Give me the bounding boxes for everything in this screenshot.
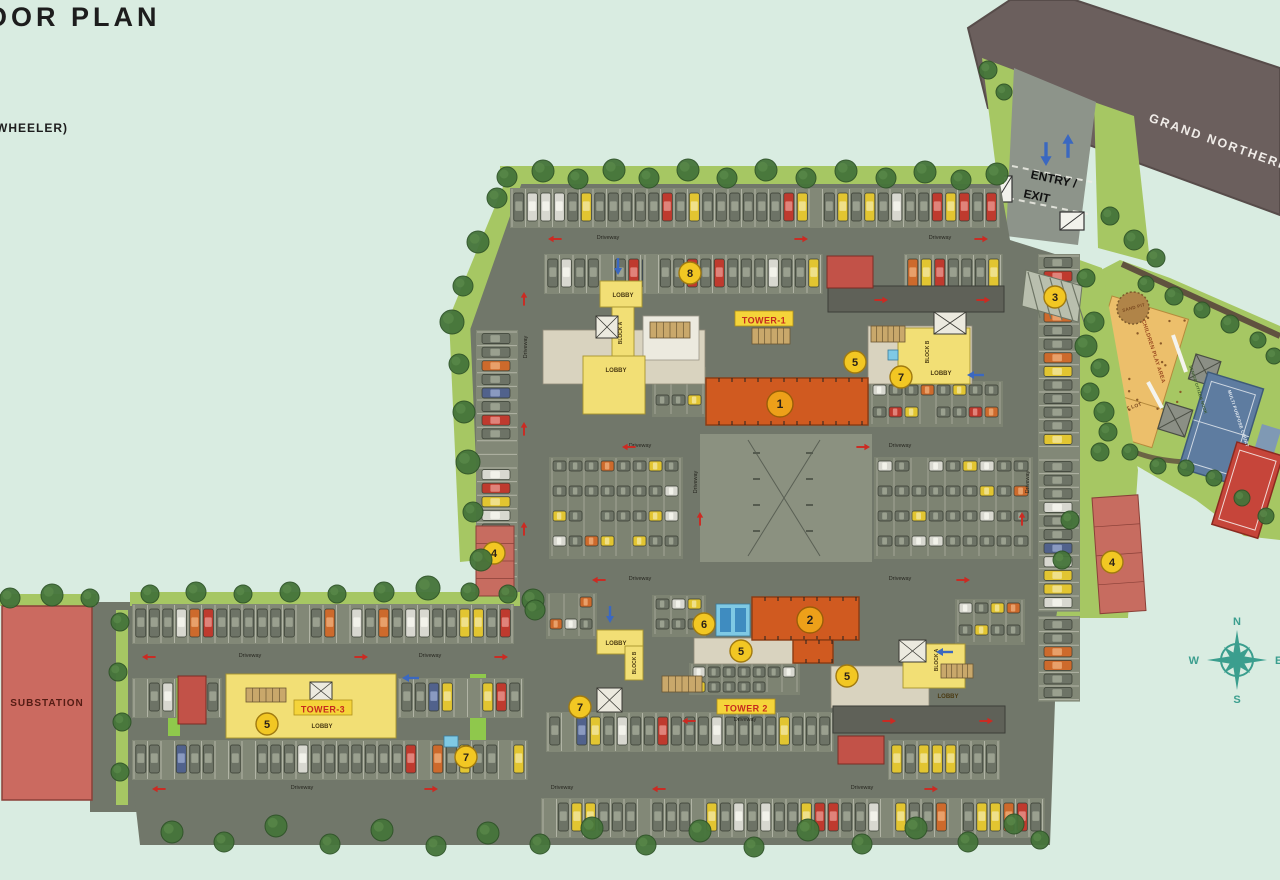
svg-text:LOBBY: LOBBY	[938, 694, 959, 700]
svg-text:5: 5	[844, 671, 850, 683]
svg-text:LOBBY: LOBBY	[931, 371, 952, 377]
svg-text:Driveway: Driveway	[629, 443, 652, 449]
svg-text:Driveway: Driveway	[929, 235, 952, 241]
svg-text:2: 2	[807, 613, 814, 627]
tower-footprint	[793, 640, 833, 663]
tower-label: TOWER-1	[742, 316, 786, 326]
svg-text:Driveway: Driveway	[523, 335, 529, 358]
legend-two-wheeler-label: WHEELER)	[0, 121, 68, 135]
svg-text:Driveway: Driveway	[851, 785, 874, 791]
svg-text:Driveway: Driveway	[629, 576, 652, 582]
svg-text:Driveway: Driveway	[889, 443, 912, 449]
svg-text:6: 6	[701, 619, 707, 631]
svg-text:BLOCK A: BLOCK A	[618, 321, 624, 344]
svg-text:Driveway: Driveway	[889, 576, 912, 582]
tower-label: TOWER-3	[301, 705, 345, 715]
svg-text:N: N	[1233, 616, 1241, 628]
floor-plan-canvas: GRAND NORTHERNENTRY /EXITSAND PITCHILDRE…	[0, 0, 1280, 880]
svg-text:3: 3	[1052, 292, 1058, 304]
svg-text:Driveway: Driveway	[1025, 470, 1031, 493]
svg-text:7: 7	[577, 702, 583, 714]
svg-text:Driveway: Driveway	[419, 653, 442, 659]
svg-text:Driveway: Driveway	[693, 470, 699, 493]
svg-text:7: 7	[898, 372, 904, 384]
svg-text:LOBBY: LOBBY	[312, 724, 333, 730]
svg-text:LOBBY: LOBBY	[606, 641, 627, 647]
svg-text:LOBBY: LOBBY	[606, 368, 627, 374]
tower-label: TOWER 2	[724, 704, 768, 714]
svg-text:5: 5	[738, 646, 744, 658]
svg-text:Driveway: Driveway	[734, 717, 757, 723]
svg-text:Driveway: Driveway	[239, 653, 262, 659]
svg-text:Driveway: Driveway	[551, 785, 574, 791]
svg-text:S: S	[1233, 694, 1240, 706]
svg-text:5: 5	[852, 357, 858, 369]
svg-text:Driveway: Driveway	[291, 785, 314, 791]
svg-text:BLOCK B: BLOCK B	[632, 651, 638, 674]
svg-text:BLOCK B: BLOCK B	[925, 340, 931, 363]
svg-text:LOBBY: LOBBY	[613, 293, 634, 299]
svg-text:7: 7	[463, 752, 469, 764]
svg-text:1: 1	[777, 397, 784, 411]
svg-text:E: E	[1275, 655, 1280, 667]
svg-text:Driveway: Driveway	[597, 235, 620, 241]
svg-text:W: W	[1189, 655, 1200, 667]
svg-text:SUBSTATION: SUBSTATION	[10, 698, 84, 709]
central-court	[700, 434, 872, 562]
page-title: OOR PLAN	[0, 2, 161, 33]
svg-text:8: 8	[687, 268, 693, 280]
svg-text:5: 5	[264, 719, 270, 731]
site-plan-svg: GRAND NORTHERNENTRY /EXITSAND PITCHILDRE…	[0, 0, 1280, 880]
svg-text:4: 4	[1109, 557, 1116, 569]
